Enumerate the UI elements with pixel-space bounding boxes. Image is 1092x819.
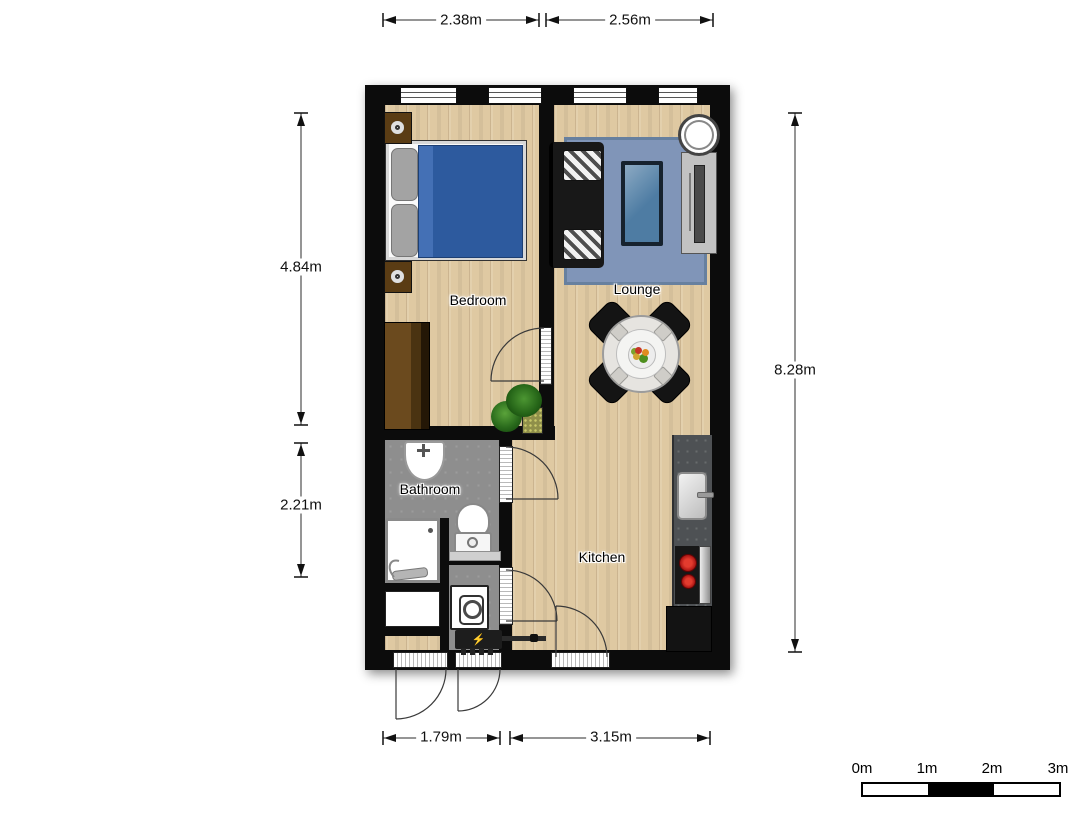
bed-blanket — [418, 145, 523, 258]
room-label-kitchen: Kitchen — [579, 549, 626, 565]
kitchen-entry-door — [551, 652, 610, 668]
coffee-table-glass — [625, 165, 659, 242]
window-bedroom-2 — [488, 87, 542, 104]
stove-burner — [679, 554, 697, 572]
scale-label-1m: 1m — [917, 760, 938, 777]
fruit-bowl — [628, 341, 656, 369]
electrical-plug — [461, 648, 466, 655]
wall-lamp-bulb — [391, 121, 404, 134]
tv-screen — [694, 165, 705, 243]
wall-lamp — [384, 261, 412, 293]
bathroom-shelf — [449, 551, 501, 561]
window-lounge-2 — [658, 87, 698, 104]
washing-machine — [450, 585, 489, 630]
scale-label-2m: 2m — [982, 760, 1003, 777]
wall-lamp — [384, 112, 412, 144]
window-lounge-1 — [573, 87, 627, 104]
wall-shower-divider — [440, 518, 449, 651]
shower-drain — [428, 528, 433, 533]
shower-handle — [392, 567, 429, 581]
electrical-panel: ⚡ — [455, 630, 502, 649]
sofa-cushion — [563, 229, 602, 260]
scale-label-3m: 3m — [1048, 760, 1069, 777]
closet-door — [499, 567, 513, 625]
floor-plan-page: ⚡ Bedroom Lounge Bathroom Kitchen — [0, 0, 1092, 819]
tv-bracket — [689, 173, 691, 231]
tv-unit — [681, 152, 717, 254]
cupboard — [385, 591, 440, 627]
stove-burner — [681, 574, 696, 589]
room-label-bedroom: Bedroom — [450, 292, 507, 308]
room-label-bathroom: Bathroom — [400, 481, 461, 497]
window-bedroom-1 — [400, 87, 457, 104]
sofa-cushion — [563, 150, 602, 181]
room-label-lounge: Lounge — [614, 281, 661, 297]
coffee-table — [621, 161, 663, 246]
toilet — [454, 503, 490, 553]
toilet-flush-button — [467, 537, 478, 548]
wall-left — [365, 85, 385, 670]
electrical-plug — [479, 648, 484, 655]
fridge — [666, 606, 712, 652]
dim-left-2: 2.21m — [276, 497, 326, 514]
ceiling-lamp — [678, 114, 720, 156]
oven-handle — [699, 546, 711, 604]
wall-shower-cupboard — [385, 583, 440, 591]
kitchen-faucet — [697, 492, 714, 498]
dim-left-1: 4.84m — [276, 259, 326, 276]
exterior-door-arc-2 — [458, 669, 500, 711]
exterior-door-1 — [393, 652, 448, 668]
dim-top-2: 2.56m — [605, 12, 655, 29]
bed-pillow — [391, 204, 418, 257]
dining-table — [602, 315, 680, 393]
electrical-cable — [502, 636, 546, 641]
entry-hall-floor — [385, 636, 440, 650]
wall-lamp-bulb — [391, 270, 404, 283]
electrical-plug — [488, 648, 493, 655]
dim-bottom-2: 3.15m — [586, 729, 636, 746]
wall-cupboard-hall — [385, 627, 440, 636]
dim-right-1: 8.28m — [770, 362, 820, 379]
washer-door — [463, 600, 482, 619]
kitchen-floor-left — [512, 440, 554, 650]
exterior-door-arc-1 — [396, 669, 446, 719]
scale-label-0m: 0m — [852, 760, 873, 777]
fruit-bowl-fruits — [635, 347, 642, 354]
electrical-plug — [470, 648, 475, 655]
faucet-icon — [417, 449, 430, 452]
cable-connector — [530, 634, 538, 642]
double-bed — [385, 140, 527, 261]
bed-pillow — [391, 148, 418, 201]
stove — [675, 546, 699, 604]
sofa — [549, 142, 604, 268]
scale-bar — [861, 782, 1061, 797]
lightning-icon: ⚡ — [472, 634, 486, 646]
wardrobe — [384, 322, 430, 430]
bathroom-door — [499, 446, 513, 503]
dim-top-1: 2.38m — [436, 12, 486, 29]
plant — [506, 384, 542, 417]
bedroom-door — [540, 327, 552, 385]
shower — [385, 518, 440, 583]
dim-bottom-1: 1.79m — [416, 729, 466, 746]
